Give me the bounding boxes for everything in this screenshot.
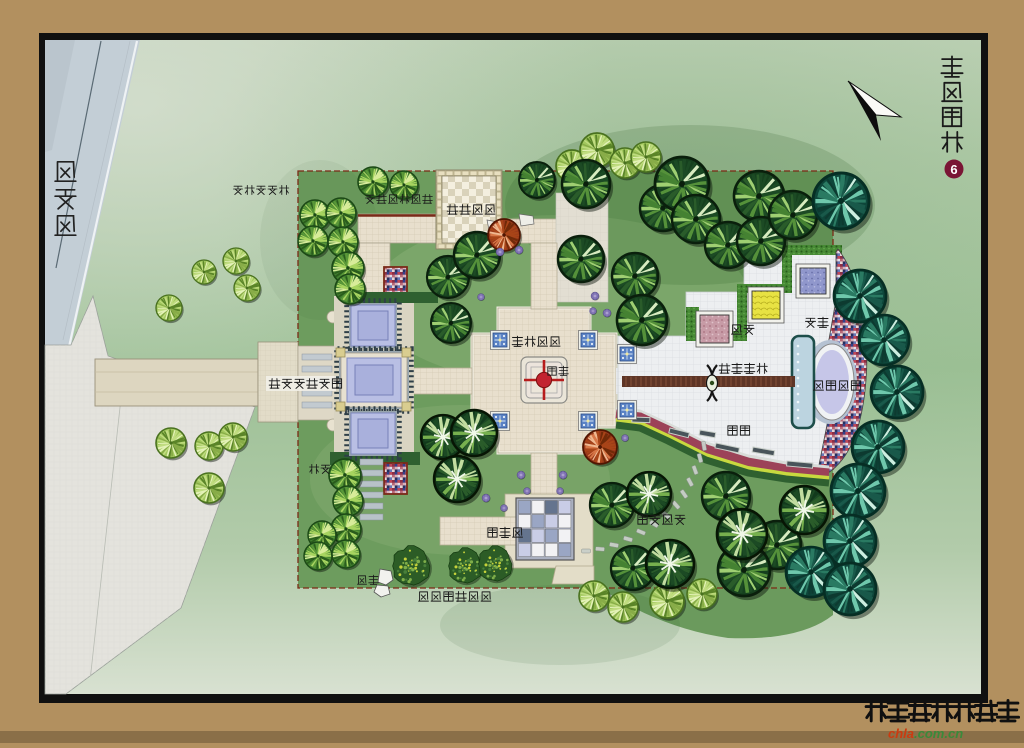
svg-text:6: 6 xyxy=(950,162,957,177)
svg-text:chla.com.cn: chla.com.cn xyxy=(888,726,963,741)
